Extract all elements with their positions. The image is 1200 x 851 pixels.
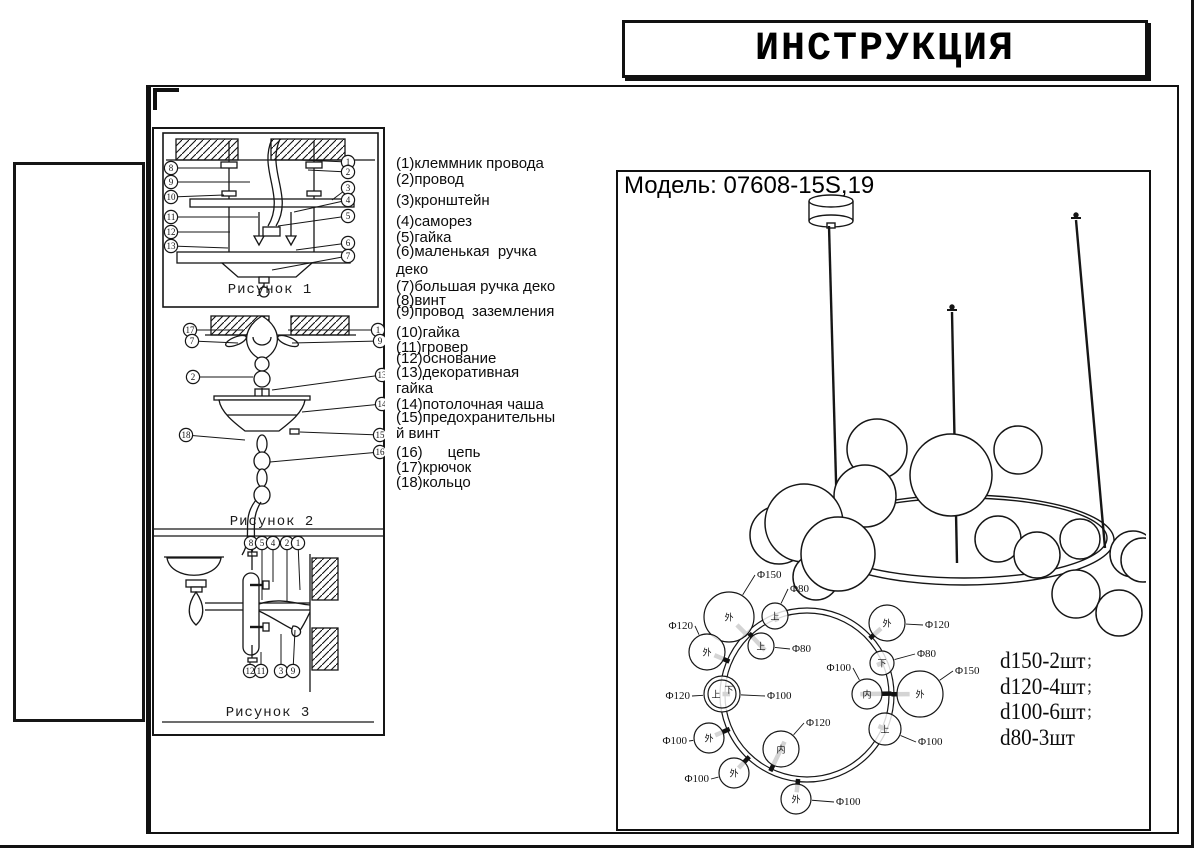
callout-leader bbox=[296, 243, 348, 250]
label-leader bbox=[743, 575, 755, 595]
diameter-label: Φ80 bbox=[792, 643, 812, 655]
globe-sphere bbox=[1014, 532, 1060, 578]
callout-number-10: 10 bbox=[167, 192, 177, 202]
callout-number-7: 7 bbox=[346, 251, 351, 261]
callout-number-1: 1 bbox=[296, 538, 301, 548]
left-blank-panel bbox=[13, 162, 145, 722]
callout-number-16: 16 bbox=[376, 447, 386, 457]
corner-mark bbox=[153, 88, 179, 110]
parts-list-item: (13)декоративная bbox=[396, 365, 519, 380]
orientation-char: 上 bbox=[880, 725, 889, 735]
model-label: Модель: 07608-15S,19 bbox=[624, 172, 874, 200]
orientation-char: 外 bbox=[724, 612, 733, 623]
parts-list-item: (16) цепь bbox=[396, 445, 480, 460]
callout-number-3: 3 bbox=[346, 183, 351, 193]
rod-tip bbox=[1074, 213, 1078, 217]
orientation-char: 外 bbox=[702, 647, 711, 658]
orientation-char: 外 bbox=[729, 768, 738, 779]
callout-number-6: 6 bbox=[346, 238, 351, 248]
scan-mark: ; bbox=[1087, 676, 1092, 697]
callout-number-13: 13 bbox=[378, 370, 386, 380]
title-box: ИНСТРУКЦИЯ bbox=[622, 20, 1148, 78]
parts-list-item: (10)гайка bbox=[396, 325, 460, 340]
diameter-label: Φ80 bbox=[917, 648, 937, 660]
label-leader bbox=[741, 695, 765, 696]
callout-number-2: 2 bbox=[191, 372, 196, 382]
callout-leader bbox=[302, 404, 382, 412]
figure3-caption: Рисунок 3 bbox=[226, 705, 311, 721]
globe-sphere bbox=[1096, 590, 1142, 636]
globe-sphere bbox=[994, 426, 1042, 474]
parts-list-item: (1)клеммник провода bbox=[396, 156, 544, 171]
callout-number-2: 2 bbox=[285, 538, 290, 548]
figures-panel: Рисунок 1 Рисунок 2 Рисунок 3 8910111213… bbox=[152, 127, 385, 736]
parts-list-item: (3)кронштейн bbox=[396, 193, 490, 208]
label-leader bbox=[906, 624, 923, 625]
callout-number-5: 5 bbox=[260, 538, 265, 548]
callout-number-8: 8 bbox=[249, 538, 254, 548]
callout-leader bbox=[300, 432, 380, 435]
diameter-label: Φ120 bbox=[668, 620, 693, 632]
parts-list-item: (9)провод заземления bbox=[396, 304, 554, 319]
quantity-line: d80-3шт bbox=[1000, 725, 1075, 751]
callout-number-9: 9 bbox=[378, 336, 383, 346]
parts-list-item: (15)предохранительны bbox=[396, 410, 555, 425]
diameter-label: Φ120 bbox=[665, 690, 690, 702]
scan-mark: ; bbox=[1087, 701, 1092, 722]
callout-number-7: 7 bbox=[190, 336, 195, 346]
orientation-char: 内 bbox=[862, 689, 871, 700]
diameter-label: Φ80 bbox=[790, 583, 810, 595]
diameter-label: Φ100 bbox=[662, 735, 687, 747]
page-title: ИНСТРУКЦИЯ bbox=[755, 27, 1015, 72]
scan-mark: ; bbox=[1087, 650, 1092, 671]
parts-list-item: (2)провод bbox=[396, 172, 464, 187]
topview-globe bbox=[704, 676, 740, 712]
label-leader bbox=[711, 777, 719, 779]
instruction-sheet: ИНСТРУКЦИЯ bbox=[0, 0, 1200, 851]
label-leader bbox=[695, 626, 699, 635]
callout-number-14: 14 bbox=[378, 399, 386, 409]
quantity-line: d120-4шт bbox=[1000, 674, 1085, 700]
orientation-char: 上 bbox=[770, 612, 779, 622]
orientation-char: 外 bbox=[791, 794, 800, 805]
quantity-line: d150-2шт bbox=[1000, 648, 1085, 674]
callout-number-13: 13 bbox=[167, 241, 177, 251]
callout-number-17: 17 bbox=[186, 325, 196, 335]
parts-list-item: гайка bbox=[396, 381, 433, 396]
label-leader bbox=[853, 668, 859, 680]
page-border-right bbox=[1191, 0, 1194, 848]
label-leader bbox=[794, 723, 804, 735]
orientation-char: 外 bbox=[915, 689, 924, 700]
callout-number-5: 5 bbox=[346, 211, 351, 221]
callout-leader bbox=[292, 341, 380, 343]
parts-list-item: (4)саморез bbox=[396, 214, 472, 229]
callout-number-12: 12 bbox=[246, 666, 255, 676]
callout-number-9: 9 bbox=[169, 177, 174, 187]
orientation-char: 外 bbox=[704, 733, 713, 744]
diameter-label: Φ120 bbox=[925, 619, 950, 631]
label-leader bbox=[689, 740, 693, 741]
diameter-label: Φ150 bbox=[757, 569, 782, 581]
callout-number-8: 8 bbox=[169, 163, 174, 173]
callout-number-9: 9 bbox=[291, 666, 296, 676]
callout-leader bbox=[171, 195, 224, 197]
callout-number-12: 12 bbox=[167, 227, 176, 237]
parts-list-item: (6)маленькая ручка bbox=[396, 244, 537, 259]
suspension-rod bbox=[1076, 220, 1105, 548]
diameter-label: Φ100 bbox=[836, 796, 861, 808]
callout-number-4: 4 bbox=[271, 538, 276, 548]
parts-list-item: деко bbox=[396, 262, 428, 277]
globe-sphere bbox=[1052, 570, 1100, 618]
callout-number-11: 11 bbox=[257, 666, 266, 676]
diameter-label: Φ100 bbox=[767, 690, 792, 702]
diameter-label: Φ100 bbox=[684, 773, 709, 785]
callout-number-18: 18 bbox=[182, 430, 192, 440]
parts-list-item: (17)крючок bbox=[396, 460, 471, 475]
orientation-char: 下 bbox=[724, 685, 733, 695]
quantity-line: d100-6шт bbox=[1000, 699, 1085, 725]
rod-tip bbox=[950, 305, 954, 309]
callout-leader bbox=[171, 246, 228, 248]
callout-number-15: 15 bbox=[376, 430, 386, 440]
figure2-caption: Рисунок 2 bbox=[230, 514, 315, 530]
parts-list-item: (18)кольцо bbox=[396, 475, 471, 490]
orientation-char: 下 bbox=[877, 659, 886, 669]
orientation-char: 上 bbox=[711, 690, 720, 700]
callout-number-4: 4 bbox=[346, 195, 351, 205]
orientation-char: 内 bbox=[776, 744, 785, 755]
diameter-label: Φ120 bbox=[806, 717, 831, 729]
parts-list: (1)клеммник провода(2)провод(3)кронштейн… bbox=[396, 0, 621, 851]
diameter-label: Φ100 bbox=[826, 662, 851, 674]
parts-list-item: й винт bbox=[396, 426, 440, 441]
callout-number-2: 2 bbox=[346, 167, 351, 177]
callout-leader bbox=[278, 216, 348, 226]
orientation-char: 上 bbox=[756, 642, 765, 652]
label-leader bbox=[812, 800, 834, 802]
callout-leader bbox=[270, 452, 380, 462]
label-leader bbox=[895, 654, 915, 660]
label-leader bbox=[901, 736, 916, 742]
label-leader bbox=[940, 671, 953, 680]
figure1-caption: Рисунок 1 bbox=[228, 282, 313, 298]
callout-number-3: 3 bbox=[279, 666, 284, 676]
callout-number-1: 1 bbox=[376, 325, 381, 335]
callout-leader bbox=[186, 435, 245, 440]
callout-number-11: 11 bbox=[167, 212, 176, 222]
callout-leader bbox=[272, 375, 382, 390]
globe-sphere bbox=[910, 434, 992, 516]
orientation-char: 外 bbox=[882, 618, 891, 629]
label-leader bbox=[692, 695, 703, 696]
globe-sphere bbox=[1060, 519, 1100, 559]
label-leader bbox=[775, 647, 790, 649]
globe-sphere bbox=[801, 517, 875, 591]
diameter-label: Φ100 bbox=[918, 736, 943, 748]
diameter-label: Φ150 bbox=[955, 665, 980, 677]
figures-drawing: Рисунок 1 Рисунок 2 Рисунок 3 8910111213… bbox=[152, 127, 385, 736]
label-leader bbox=[781, 589, 788, 603]
